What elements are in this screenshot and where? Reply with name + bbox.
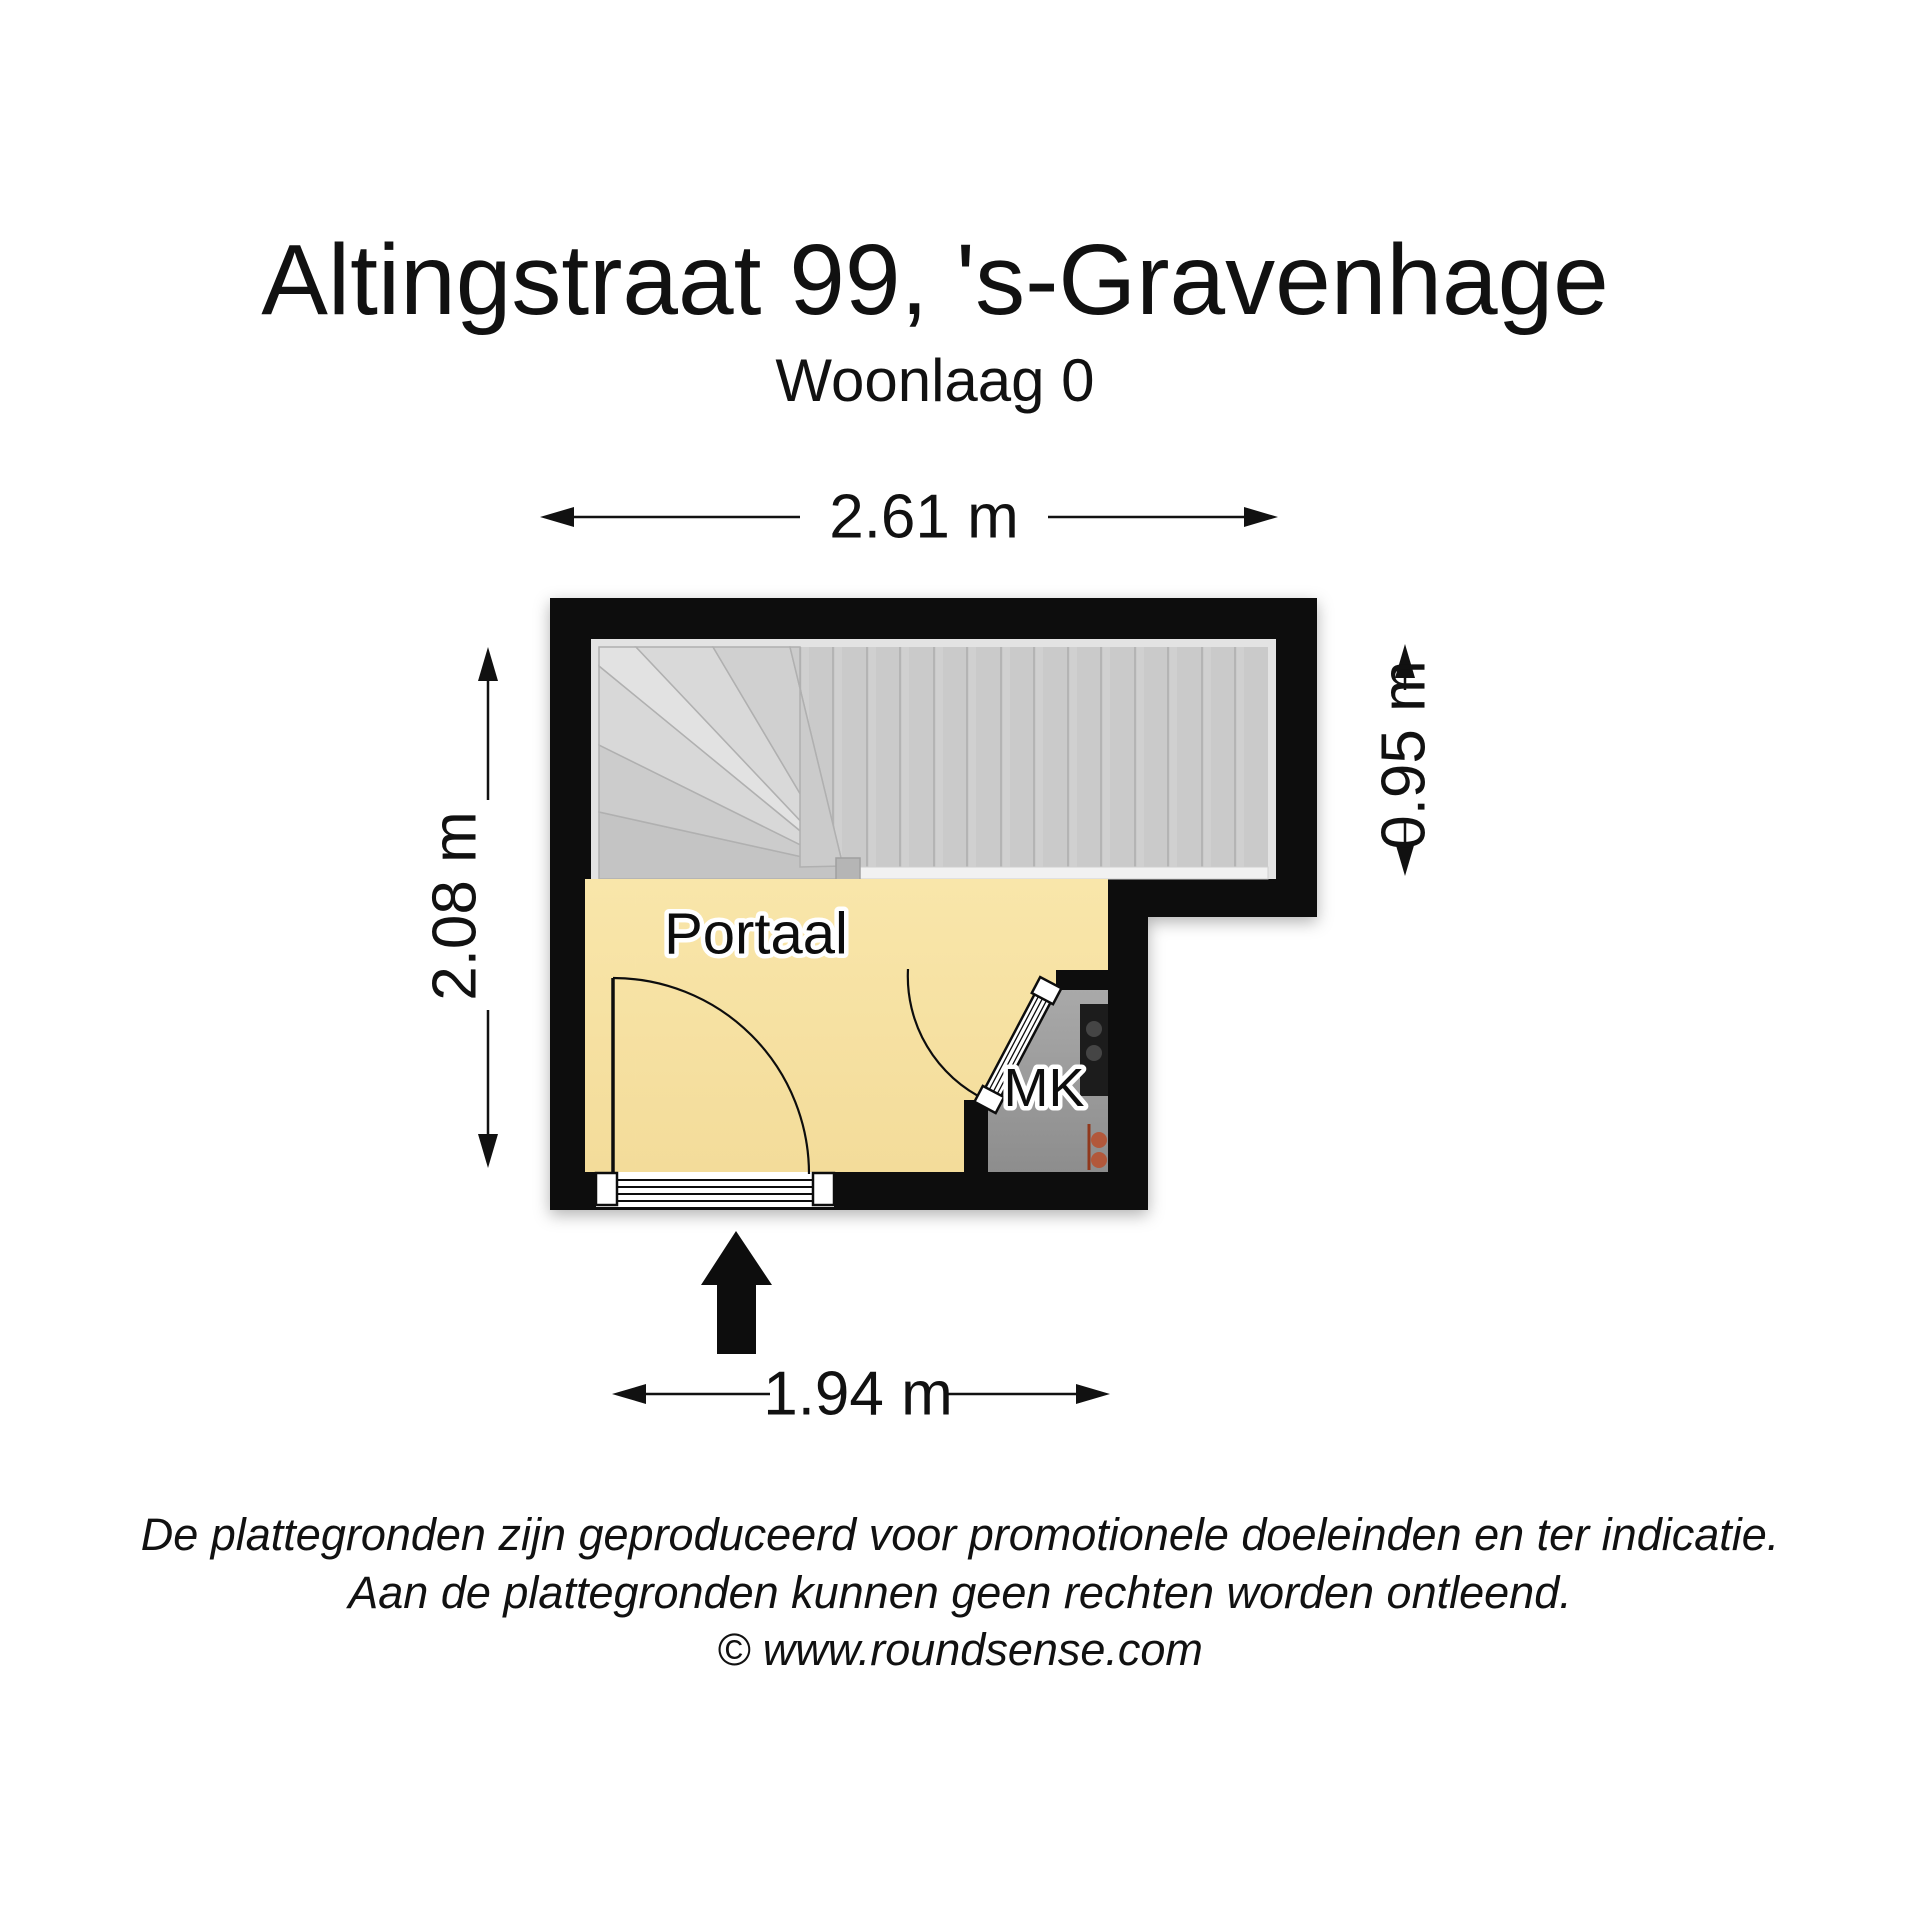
dimension-bottom-label: 1.94 m: [763, 1360, 953, 1429]
staircase: [591, 639, 1276, 880]
arrow-down-icon: [478, 1134, 498, 1168]
meter-dial-icon: [1086, 1021, 1102, 1037]
disclaimer-line-2: Aan de plattegronden kunnen geen rechten…: [0, 1564, 1920, 1622]
mk-wall-stub-bottom: [964, 1100, 988, 1172]
door-post: [813, 1173, 834, 1205]
meter-dial-icon: [1086, 1045, 1102, 1061]
dimension-right-label: 0.95 m: [1370, 660, 1439, 850]
disclaimer-line-1: De plattegronden zijn geproduceerd voor …: [0, 1506, 1920, 1564]
arrow-right-icon: [1076, 1384, 1110, 1404]
arrow-right-icon: [1244, 507, 1278, 527]
copyright-line: © www.roundsense.com: [0, 1621, 1920, 1679]
gas-valve-icon: [1091, 1132, 1107, 1148]
stair-newel-post: [836, 858, 860, 880]
stair-bottom-strip: [860, 867, 1268, 879]
gas-valve-icon: [1091, 1152, 1107, 1168]
dimension-top-label: 2.61 m: [829, 483, 1019, 552]
entry-arrow-icon: [701, 1231, 772, 1354]
footer: De plattegronden zijn geproduceerd voor …: [0, 1506, 1920, 1679]
room-label-mk: MK: [1004, 1058, 1085, 1118]
arrow-left-icon: [612, 1384, 646, 1404]
floorplan: Portaal MK: [550, 598, 1317, 1210]
door-post: [596, 1173, 617, 1205]
arrow-up-icon: [478, 647, 498, 681]
room-label-portaal: Portaal: [664, 902, 848, 967]
arrow-left-icon: [540, 507, 574, 527]
dimension-left-label: 2.08 m: [421, 811, 490, 1001]
mk-wall-stub-top: [1056, 970, 1108, 990]
